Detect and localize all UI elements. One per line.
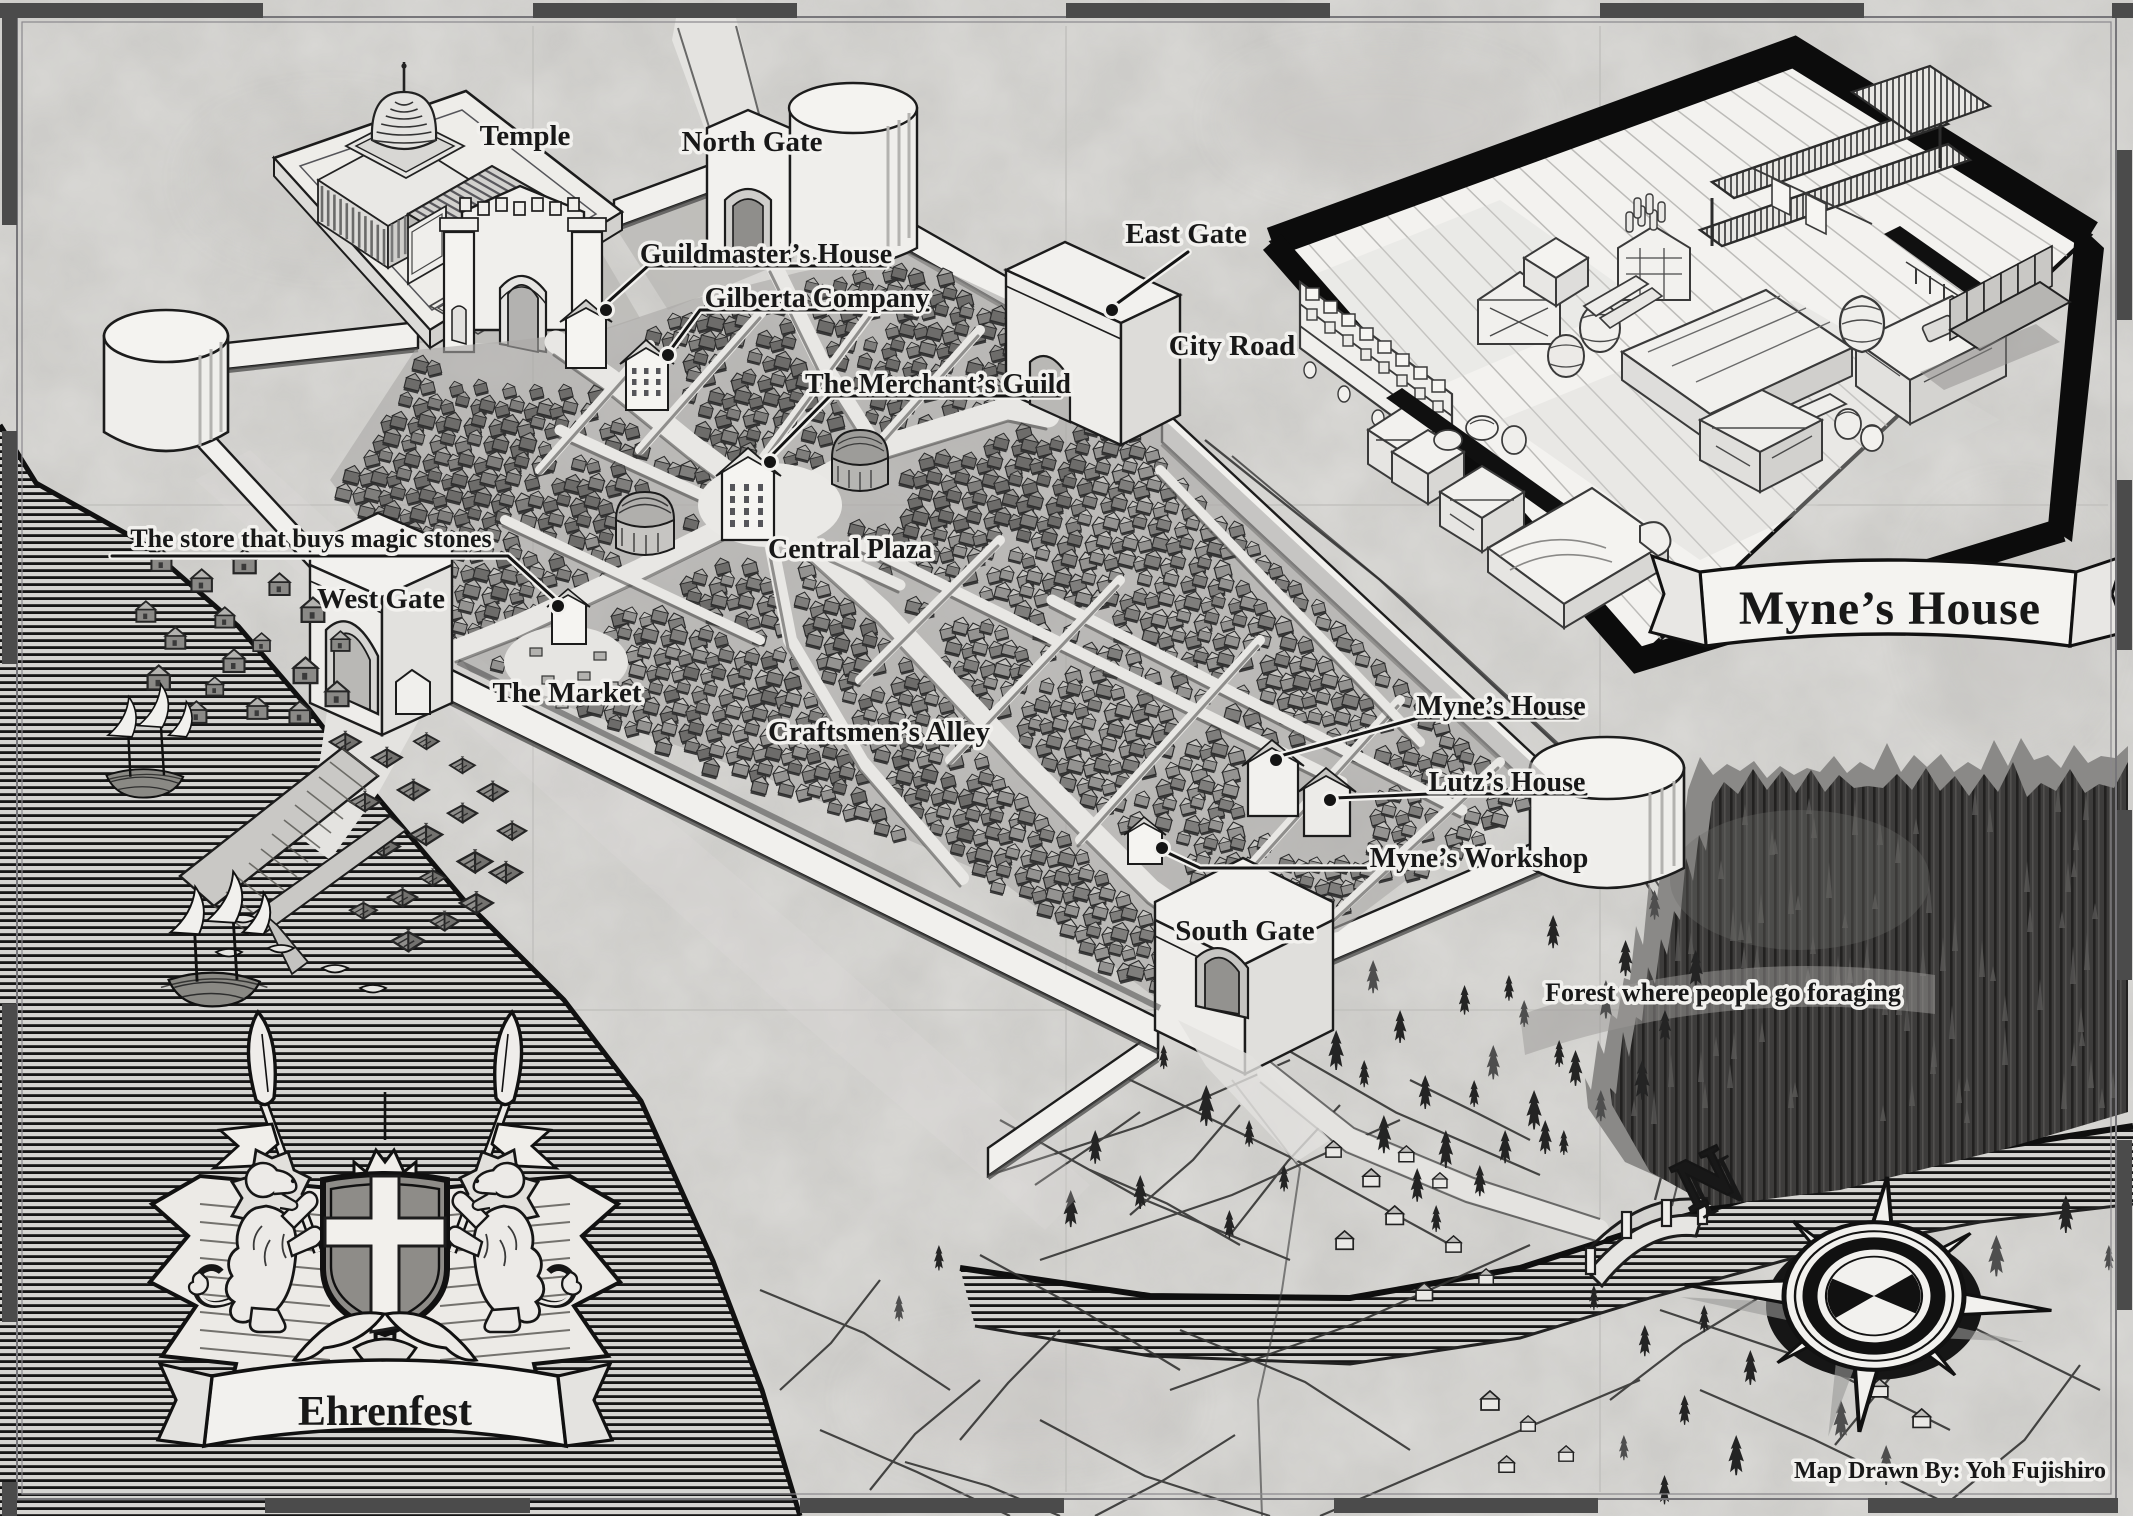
svg-text:City Road: City Road [1169,330,1295,362]
svg-text:The Merchant’s Guild: The Merchant’s Guild [805,369,1071,400]
svg-text:Lutz’s House: Lutz’s House [1429,767,1586,798]
svg-text:West Gate: West Gate [317,583,445,615]
svg-text:Myne’s House: Myne’s House [1416,691,1585,722]
svg-text:Temple: Temple [480,120,571,152]
svg-text:Central Plaza: Central Plaza [768,534,932,565]
svg-text:East Gate: East Gate [1125,218,1247,250]
svg-text:South Gate: South Gate [1175,915,1315,947]
svg-text:Gilberta Company: Gilberta Company [705,283,930,314]
svg-text:Forest where people go foragin: Forest where people go foraging [1545,978,1901,1007]
svg-text:Ehrenfest: Ehrenfest [298,1389,472,1435]
svg-text:The Market: The Market [493,677,642,709]
svg-text:The store that buys magic ston: The store that buys magic stones [130,524,491,553]
svg-text:Craftsmen’s Alley: Craftsmen’s Alley [768,716,991,748]
svg-text:Myne’s Workshop: Myne’s Workshop [1370,843,1589,874]
svg-text:Myne’s House: Myne’s House [1739,582,2041,635]
svg-text:North Gate: North Gate [682,126,823,158]
svg-text:Map Drawn By: Yoh Fujishiro: Map Drawn By: Yoh Fujishiro [1794,1458,2106,1484]
svg-text:Guildmaster’s House: Guildmaster’s House [640,239,892,270]
